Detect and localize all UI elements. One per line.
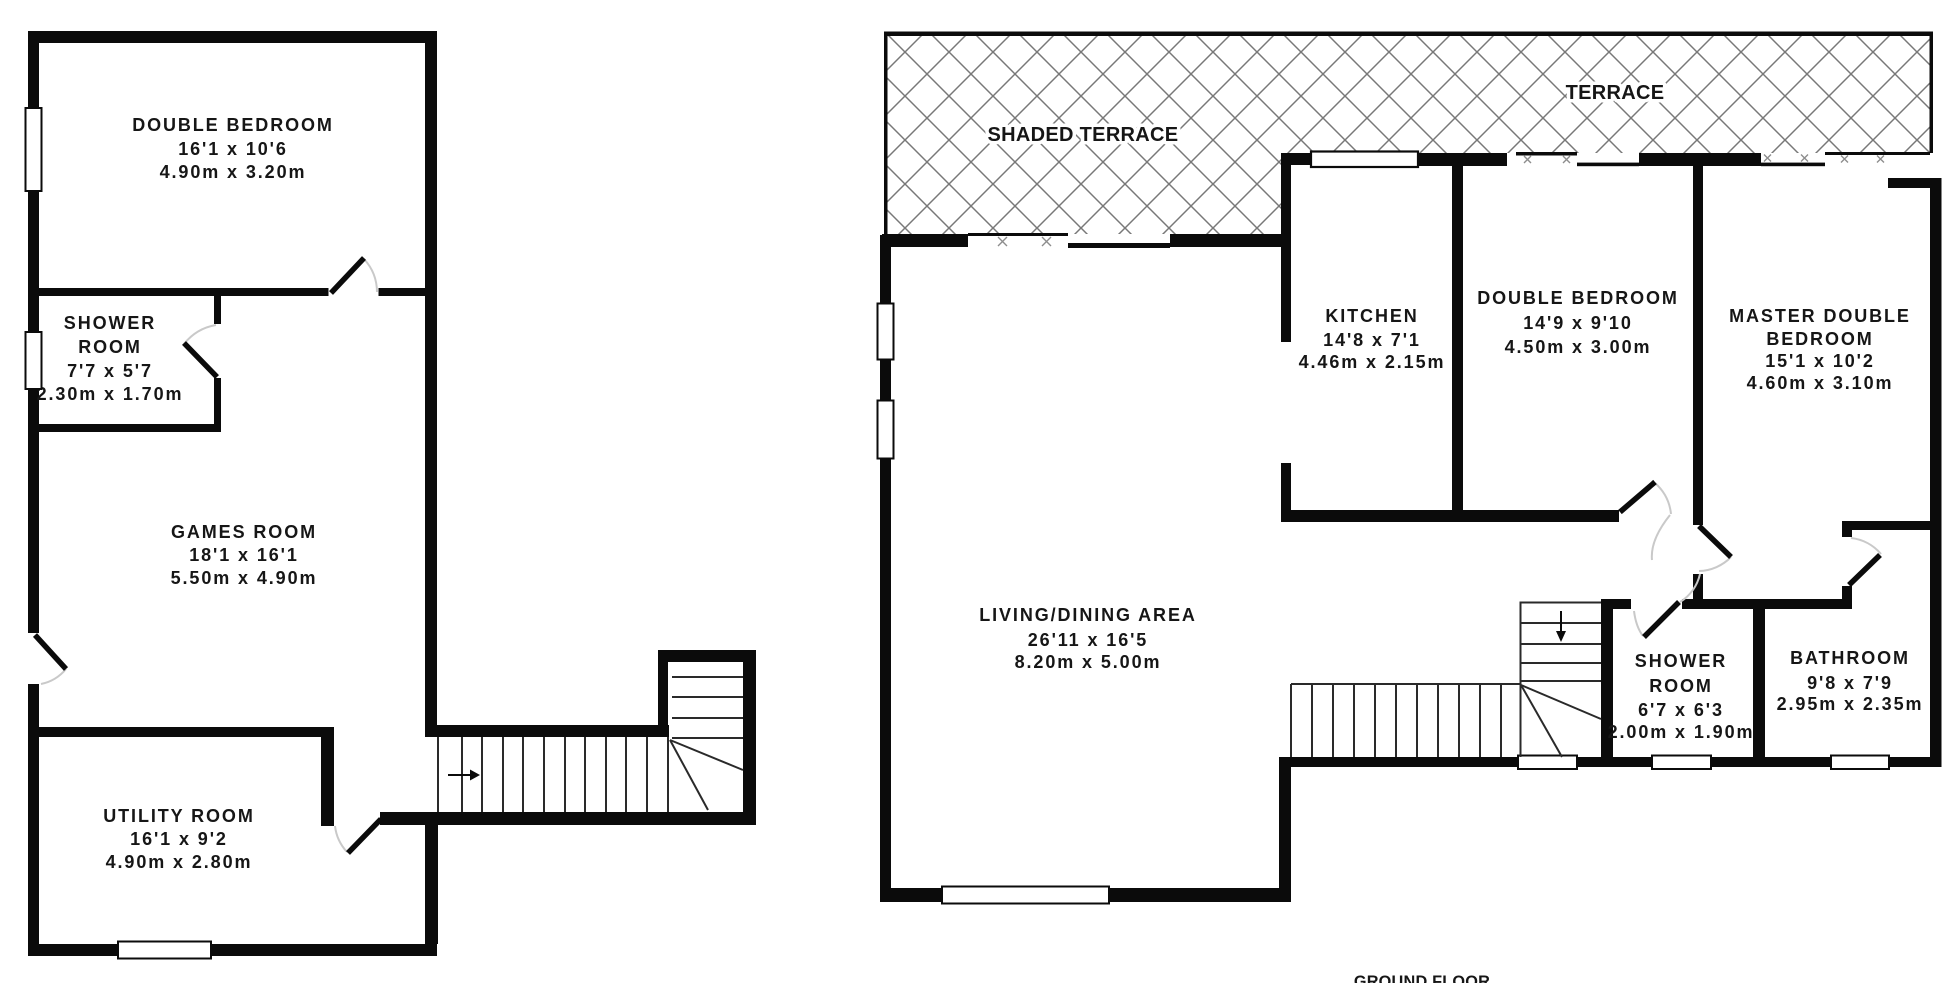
svg-text:GROUND FLOOR: GROUND FLOOR [1354,973,1490,983]
svg-text:BATHROOM: BATHROOM [1790,648,1910,668]
svg-text:4.90m x 2.80m: 4.90m x 2.80m [106,852,253,872]
svg-text:16'1 x 10'6: 16'1 x 10'6 [178,139,288,159]
svg-text:GAMES ROOM: GAMES ROOM [171,522,317,542]
svg-text:7'7 x 5'7: 7'7 x 5'7 [67,361,153,381]
svg-text:16'1 x 9'2: 16'1 x 9'2 [130,829,228,849]
svg-text:ROOM: ROOM [1649,676,1713,696]
svg-text:6'7 x 6'3: 6'7 x 6'3 [1638,700,1724,720]
svg-text:2.95m x 2.35m: 2.95m x 2.35m [1777,694,1924,714]
svg-text:18'1 x 16'1: 18'1 x 16'1 [189,545,299,565]
svg-text:UTILITY ROOM: UTILITY ROOM [103,806,254,826]
svg-text:15'1 x 10'2: 15'1 x 10'2 [1765,351,1875,371]
svg-text:ROOM: ROOM [78,337,142,357]
svg-text:4.60m x 3.10m: 4.60m x 3.10m [1747,373,1894,393]
svg-text:5.50m x 4.90m: 5.50m x 4.90m [171,568,318,588]
svg-text:TERRACE: TERRACE [1566,82,1665,104]
svg-text:KITCHEN: KITCHEN [1325,306,1418,326]
svg-text:14'9 x 9'10: 14'9 x 9'10 [1523,313,1633,333]
svg-text:MASTER DOUBLE: MASTER DOUBLE [1729,306,1911,326]
svg-text:SHADED TERRACE: SHADED TERRACE [988,124,1179,146]
svg-text:2.00m x 1.90m: 2.00m x 1.90m [1608,722,1755,742]
svg-text:8.20m x 5.00m: 8.20m x 5.00m [1015,652,1162,672]
svg-text:4.46m x 2.15m: 4.46m x 2.15m [1299,352,1446,372]
svg-text:26'11 x 16'5: 26'11 x 16'5 [1028,630,1148,650]
svg-text:SHOWER: SHOWER [64,313,156,333]
svg-text:SHOWER: SHOWER [1635,651,1727,671]
svg-text:LIVING/DINING AREA: LIVING/DINING AREA [979,605,1197,625]
svg-text:2.30m x 1.70m: 2.30m x 1.70m [37,384,184,404]
svg-text:DOUBLE BEDROOM: DOUBLE BEDROOM [1477,288,1679,308]
svg-text:9'8 x 7'9: 9'8 x 7'9 [1807,673,1893,693]
svg-text:4.50m x 3.00m: 4.50m x 3.00m [1505,337,1652,357]
svg-text:4.90m x 3.20m: 4.90m x 3.20m [160,162,307,182]
svg-text:14'8 x 7'1: 14'8 x 7'1 [1323,330,1421,350]
svg-text:DOUBLE BEDROOM: DOUBLE BEDROOM [132,115,334,135]
svg-text:BEDROOM: BEDROOM [1766,329,1873,349]
